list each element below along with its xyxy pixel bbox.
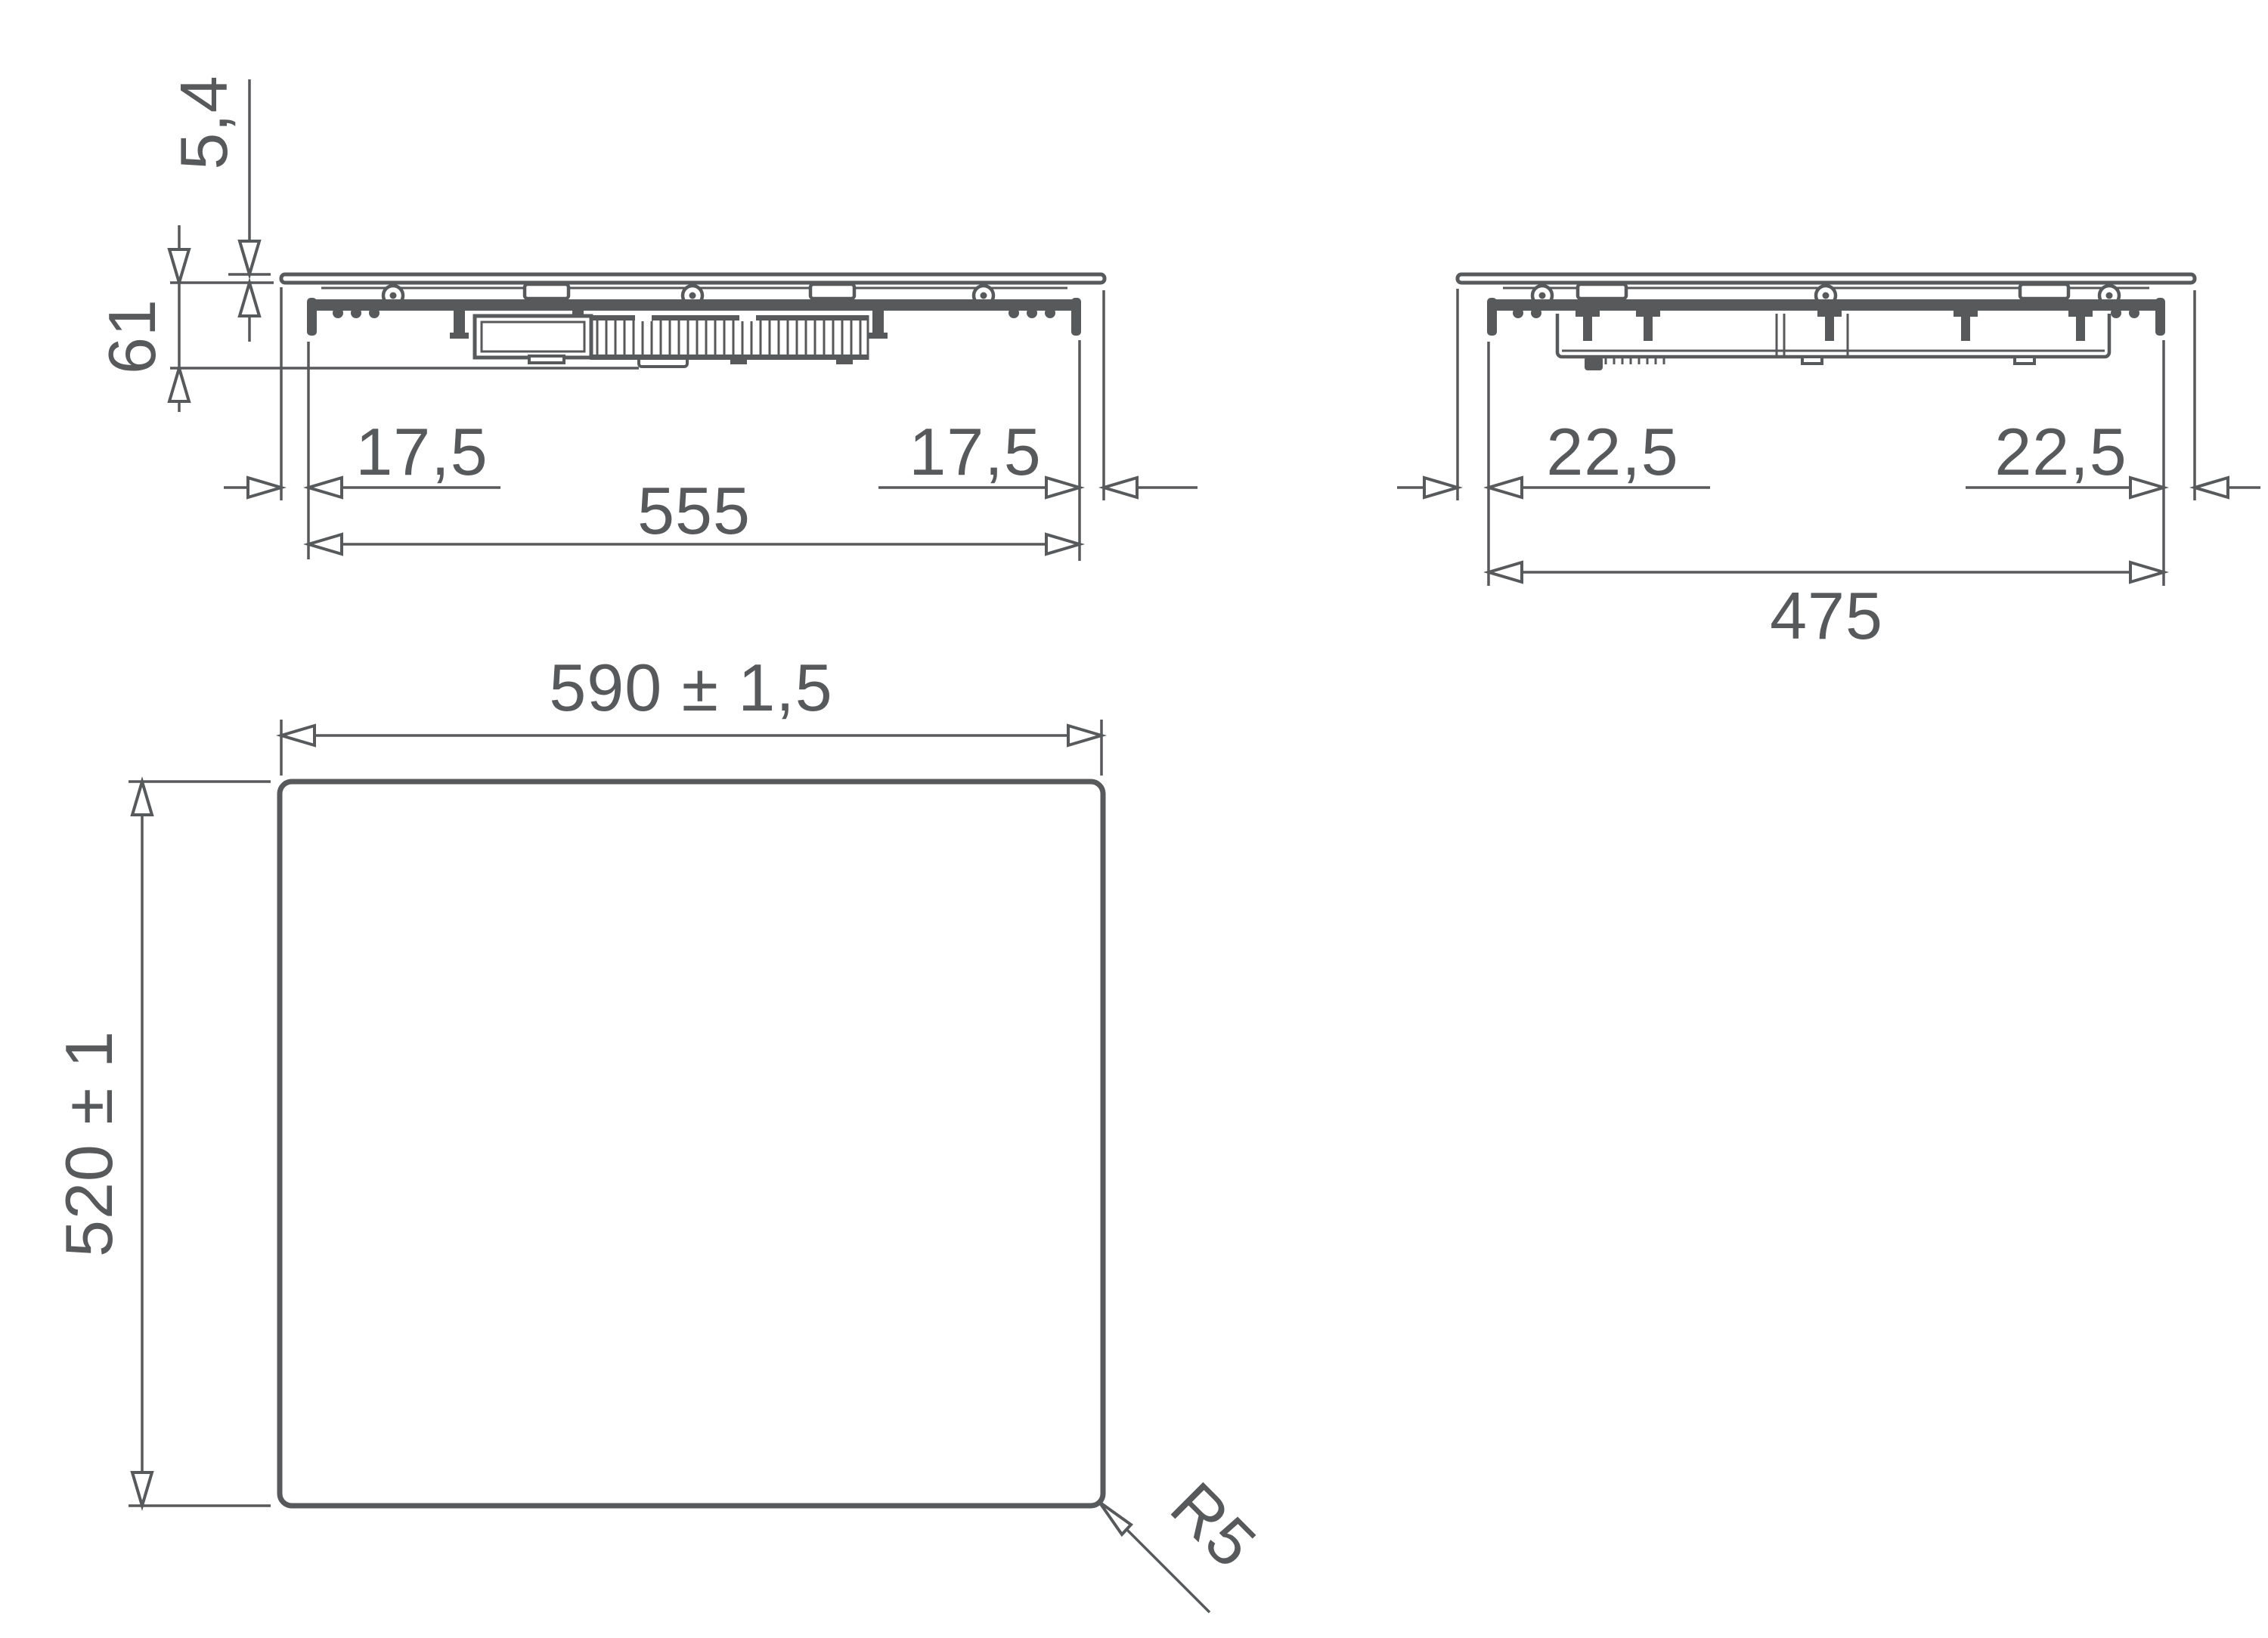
end-clip — [307, 298, 317, 336]
dim-overall-width: 590 ± 1,5 — [281, 650, 1101, 776]
dim-left-overhang: 22,5 — [1397, 414, 1710, 497]
heat-sink — [591, 315, 868, 367]
connector-block — [1585, 357, 1603, 370]
dim-glass-thickness: 5,4 — [166, 75, 274, 342]
rail-slot — [525, 284, 569, 299]
bottom-tab — [1802, 357, 1822, 364]
built-in-depth-label: 61 — [94, 299, 169, 374]
dim-overall-depth: 520 ± 1 — [51, 782, 271, 1506]
overall-depth-label: 520 ± 1 — [51, 1030, 126, 1257]
bottom-tab — [2015, 357, 2034, 364]
hob-dimension-drawing: 5,4 61 17,5 17,5 — [0, 0, 2268, 1638]
dim-right-overhang: 17,5 — [878, 414, 1198, 497]
glass-thickness-label: 5,4 — [166, 75, 241, 169]
front-section-view: 5,4 61 17,5 17,5 — [94, 75, 1198, 561]
rail-slot — [2020, 284, 2068, 299]
drawing-svg: 5,4 61 17,5 17,5 — [0, 0, 2268, 1638]
right-overhang-label: 22,5 — [1994, 414, 2127, 489]
glass-plate-front — [281, 274, 1105, 283]
rail-slot — [1578, 284, 1626, 299]
left-overhang-label: 17,5 — [355, 414, 488, 489]
dim-body-depth: 475 — [1489, 562, 2164, 653]
arrow-up — [240, 283, 259, 316]
mounting-rail-front — [308, 299, 1080, 311]
end-clip — [1071, 298, 1081, 336]
right-overhang-label: 17,5 — [909, 414, 1041, 489]
rail-slot — [810, 284, 854, 299]
overall-width-label: 590 ± 1,5 — [549, 650, 832, 725]
glass-outline-plan — [280, 782, 1103, 1506]
arrow-up — [169, 368, 189, 401]
mounting-rail-side — [1489, 299, 2164, 311]
junction-box — [475, 316, 591, 363]
end-clip — [1487, 298, 1497, 336]
plan-view: 590 ± 1,5 520 ± 1 R5 — [51, 650, 1271, 1612]
leader-arrow — [1099, 1502, 1131, 1534]
end-clip — [2155, 298, 2165, 336]
ventilation-fins — [597, 320, 860, 355]
body-depth-label: 475 — [1770, 578, 1883, 653]
dim-left-overhang: 17,5 — [224, 414, 500, 497]
arrow-down — [169, 249, 189, 283]
glass-plate-side — [1458, 274, 2195, 283]
blower-outlet — [639, 360, 687, 367]
side-section-view: 22,5 22,5 475 — [1397, 274, 2260, 653]
dim-right-overhang: 22,5 — [1966, 414, 2260, 497]
corner-radius-label: R5 — [1157, 1468, 1271, 1582]
corner-radius-callout: R5 — [1099, 1468, 1271, 1612]
coil-support-pegs — [1576, 309, 2093, 341]
left-overhang-label: 22,5 — [1546, 414, 1678, 489]
arrow-down — [240, 241, 259, 274]
body-width-label: 555 — [637, 473, 751, 548]
